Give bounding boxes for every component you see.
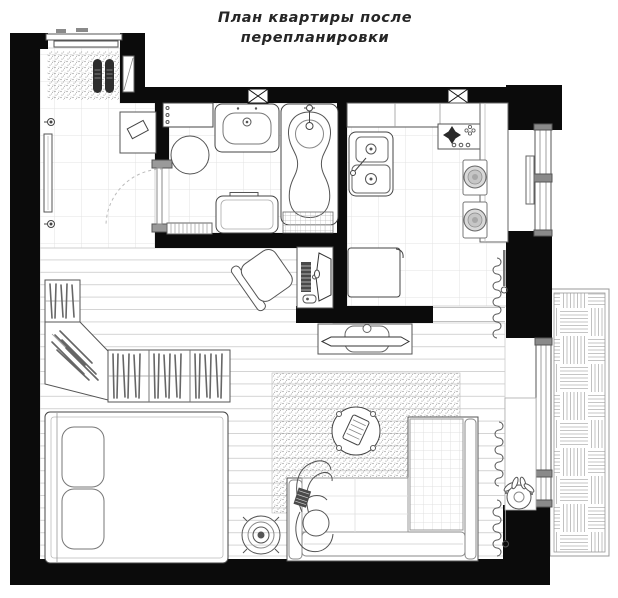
tv-zone bbox=[318, 324, 412, 354]
wall-mirror bbox=[44, 134, 52, 212]
bathtub bbox=[281, 104, 338, 225]
wall-shelf bbox=[163, 103, 213, 127]
duckboard-mat bbox=[283, 212, 333, 233]
vent-grille-bathroom bbox=[248, 89, 268, 103]
bar-stool-1 bbox=[463, 160, 487, 195]
plan-title-line2: перепланировки bbox=[170, 28, 460, 48]
floor-plan-drawing bbox=[0, 0, 618, 598]
floor-lamp bbox=[242, 516, 280, 554]
cooktop bbox=[438, 124, 482, 149]
refrigerator bbox=[348, 248, 403, 297]
plan-title-line1: План квартиры после bbox=[170, 8, 460, 28]
chaise-section bbox=[410, 419, 463, 530]
double-bed bbox=[45, 412, 228, 563]
floor-plan: План квартиры после перепланировки bbox=[0, 0, 618, 598]
radiator bbox=[526, 156, 534, 204]
balcony bbox=[550, 289, 609, 556]
coffee-table bbox=[332, 407, 380, 455]
bar-stool-2 bbox=[463, 202, 487, 238]
double-sink bbox=[349, 132, 393, 196]
shoe-cabinet bbox=[123, 56, 134, 92]
balcony-door bbox=[535, 338, 552, 507]
mouse bbox=[315, 270, 320, 278]
tv-mount bbox=[363, 325, 371, 333]
desk-accessory bbox=[303, 295, 316, 303]
pillow-1 bbox=[62, 427, 104, 487]
bath-mat bbox=[167, 223, 212, 234]
tv bbox=[322, 337, 409, 346]
keyboard bbox=[301, 262, 311, 292]
kitchen-window bbox=[534, 124, 552, 236]
washing-machine bbox=[216, 193, 278, 234]
sliding-entry-door bbox=[46, 28, 122, 47]
vent-grille-kitchen bbox=[448, 89, 468, 103]
plan-title: План квартиры после перепланировки bbox=[170, 8, 460, 49]
pillow-2 bbox=[62, 489, 104, 549]
laundry-basket bbox=[171, 136, 209, 174]
console-table bbox=[120, 112, 156, 153]
deck-flooring bbox=[554, 293, 605, 552]
washbasin bbox=[215, 104, 279, 152]
